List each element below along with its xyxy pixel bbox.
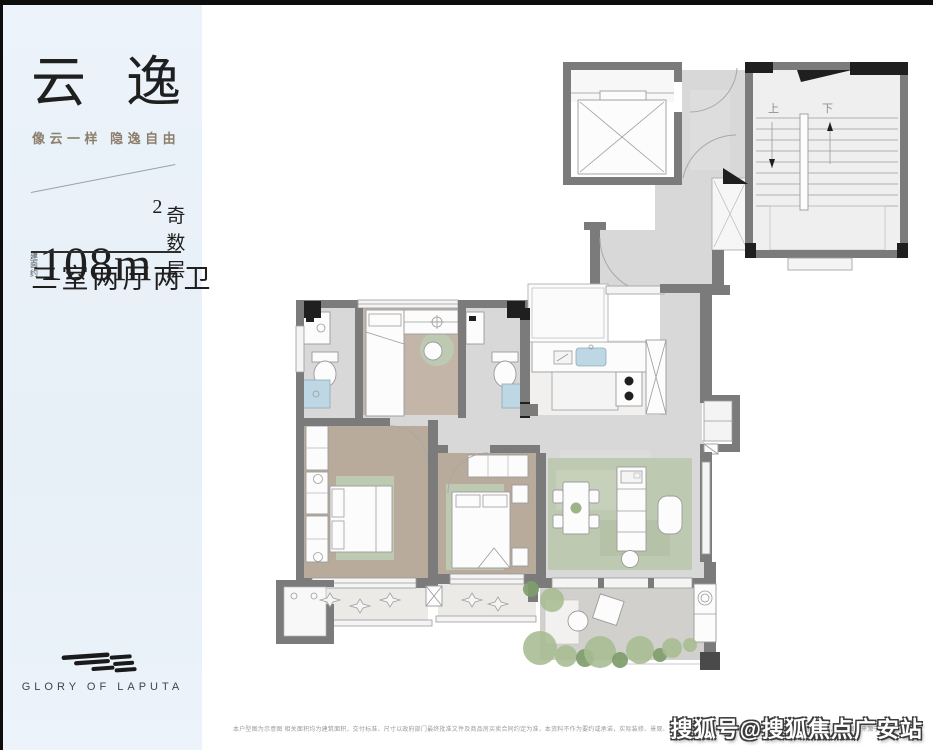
shower-icon [302, 380, 330, 408]
wardrobe [468, 455, 528, 477]
brand-name: GLORY OF LAPUTA [3, 681, 202, 693]
toilet-icon [492, 352, 518, 387]
stairs-up-label: 上 [768, 102, 779, 115]
cloud-logo-icon [55, 645, 145, 679]
room-layout-text: 三室两厅两卫 [31, 257, 214, 296]
stove-icon [616, 372, 642, 406]
armchair [658, 496, 682, 534]
ac-platform [276, 580, 334, 644]
elevator [563, 62, 682, 185]
info-sidebar: 云逸 像云一样 隐逸自由 建面约 108m 2 奇数层 三室两厅两卫 GLORY… [3, 5, 202, 750]
stairs-down-label: 下 [822, 103, 833, 115]
watermark-text: 搜狐号@搜狐焦点广安站 [671, 712, 923, 744]
plan-title: 云逸 [31, 53, 221, 114]
nightstand [512, 485, 528, 503]
horizontal-rule [31, 251, 181, 253]
basin-icon [502, 384, 522, 408]
area-superscript: 2 [152, 197, 162, 217]
kitchen-island [552, 372, 618, 410]
balcony-divider [426, 586, 442, 606]
nightstand [512, 548, 528, 566]
floorplan-poster: 上 下 [0, 0, 933, 750]
plan-slogan: 像云一样 隐逸自由 [32, 128, 180, 147]
fridge-icon [646, 340, 666, 414]
kitchen [532, 340, 666, 414]
diagonal-divider [31, 164, 175, 193]
double-bed [452, 492, 510, 568]
chair [424, 342, 442, 360]
sofa [617, 467, 646, 551]
table-plant-icon [571, 503, 582, 514]
double-bed [330, 486, 392, 552]
washing-machine-icon [694, 584, 716, 642]
wardrobe [306, 426, 328, 562]
terrace-table [568, 611, 588, 631]
floor-lamp-icon [622, 551, 639, 568]
kitchen-sink-icon [576, 348, 606, 366]
